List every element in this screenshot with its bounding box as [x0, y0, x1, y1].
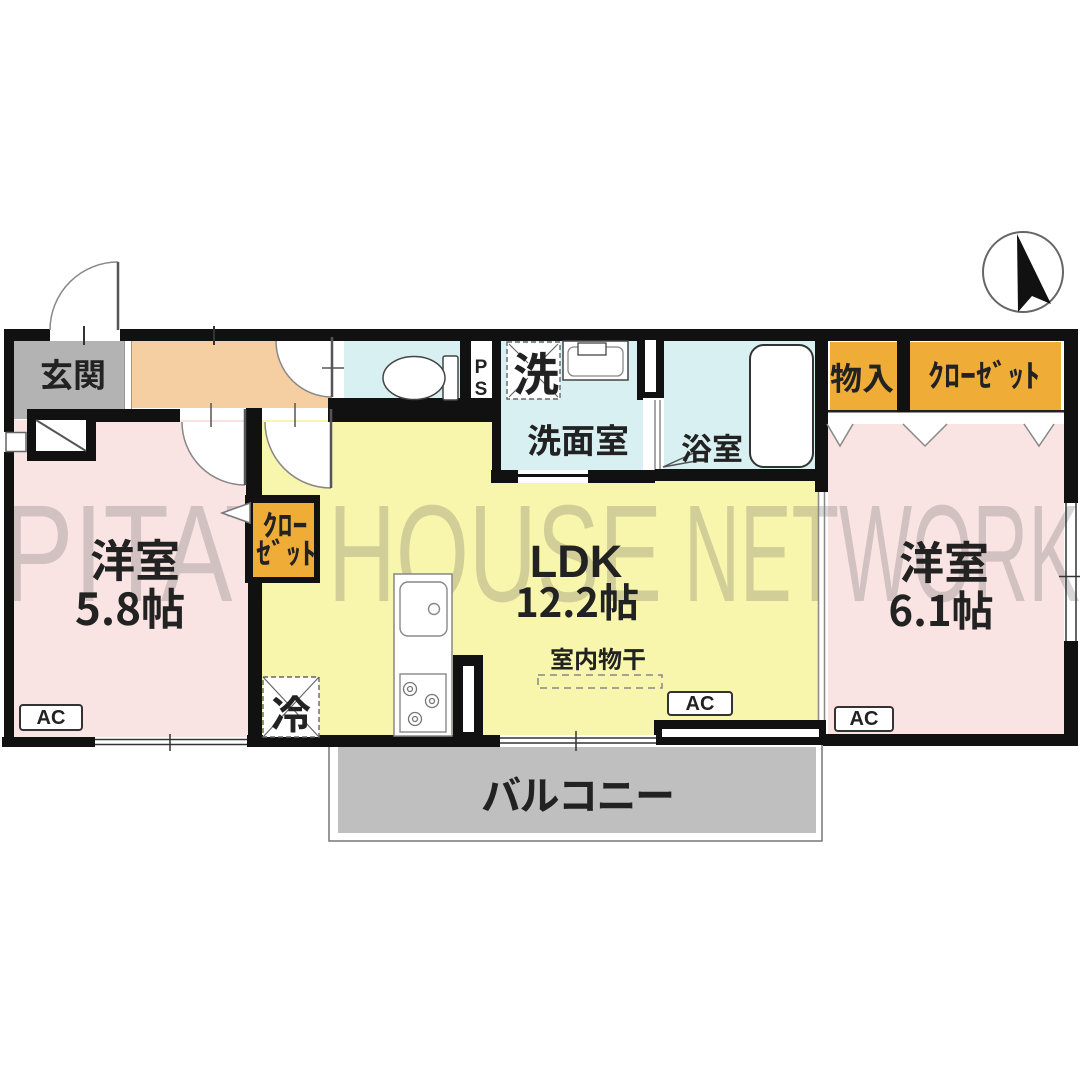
svg-text:AC: AC	[686, 693, 715, 715]
svg-text:LDK: LDK	[530, 536, 623, 587]
svg-text:NETWORK: NETWORK	[684, 477, 1080, 631]
svg-text:AC: AC	[850, 708, 879, 730]
svg-text:AC: AC	[37, 707, 66, 729]
svg-text:S: S	[475, 379, 488, 400]
svg-text:P: P	[475, 357, 488, 378]
